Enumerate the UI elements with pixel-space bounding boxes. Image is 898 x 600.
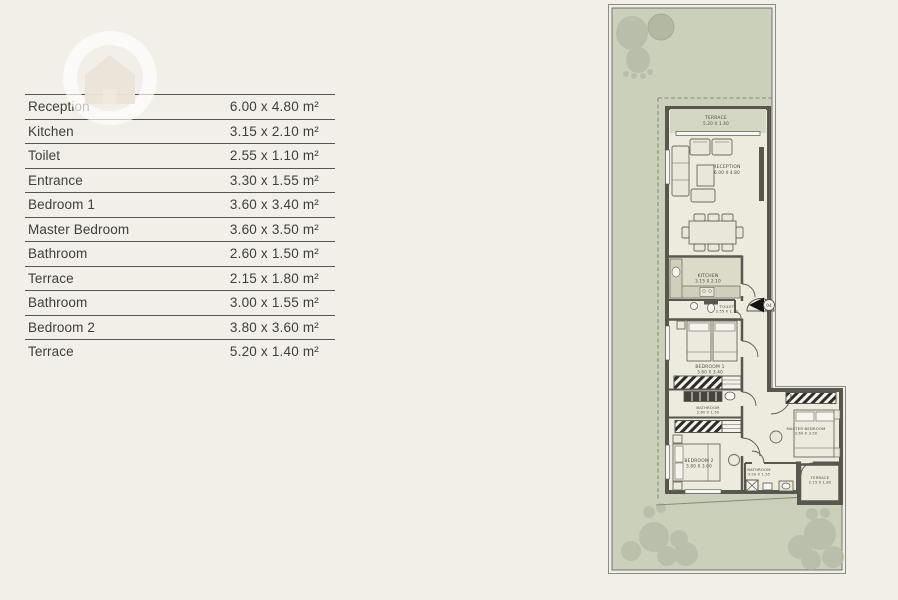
room-size: 2.60 x 1.50 m²: [230, 246, 335, 261]
room-size: 3.60 x 3.40 m²: [230, 197, 335, 212]
terrace-top: TERRACE 5.20 X 1.40: [670, 109, 766, 136]
bedroom1-label: BEDROOM 1 3.60 X 3.40: [695, 364, 724, 375]
table-row: Entrance3.30 x 1.55 m²: [25, 168, 335, 193]
svg-text:BATHROOM: BATHROOM: [747, 468, 770, 472]
table-row: Kitchen3.15 x 2.10 m²: [25, 119, 335, 144]
table-row: Toilet2.55 x 1.10 m²: [25, 143, 335, 168]
svg-text:3.00 X 1.55: 3.00 X 1.55: [748, 473, 770, 477]
table-row: Terrace2.15 x 1.80 m²: [25, 266, 335, 291]
room-label: Master Bedroom: [25, 222, 129, 237]
svg-text:6.00 X 4.80: 6.00 X 4.80: [714, 170, 740, 175]
svg-text:2.60 X 1.50: 2.60 X 1.50: [697, 411, 719, 415]
room-label: Reception: [25, 99, 90, 114]
room-size: 3.15 x 2.10 m²: [230, 124, 335, 139]
floorplan-page: Reception6.00 x 4.80 m² Kitchen3.15 x 2.…: [0, 0, 898, 600]
room-label: Bathroom: [25, 295, 87, 310]
bedroom2-label: BEDROOM 2 3.80 X 3.60: [684, 458, 713, 469]
reception-label: RECEPTION 6.00 X 4.80: [713, 164, 740, 175]
room-label: Bathroom: [25, 246, 87, 261]
svg-text:3.15 X 2.10: 3.15 X 2.10: [695, 279, 721, 284]
svg-text:3.60 X 3.50: 3.60 X 3.50: [795, 432, 817, 436]
room-size: 3.00 x 1.55 m²: [230, 295, 335, 310]
room-size: 6.00 x 4.80 m²: [230, 99, 335, 114]
table-row: Master Bedroom3.60 x 3.50 m²: [25, 217, 335, 242]
room-label: Toilet: [25, 148, 60, 163]
svg-text:MASTER BEDROOM: MASTER BEDROOM: [786, 427, 825, 431]
table-row: Terrace5.20 x 1.40 m²: [25, 339, 335, 364]
room-label: Kitchen: [25, 124, 74, 139]
room-size: 2.15 x 1.80 m²: [230, 271, 335, 286]
svg-text:2.55 X 1.10: 2.55 X 1.10: [716, 310, 738, 314]
svg-text:3.80 X 3.60: 3.80 X 3.60: [686, 464, 712, 469]
svg-text:BATHROOM: BATHROOM: [696, 406, 719, 410]
svg-text:TERRACE: TERRACE: [810, 476, 830, 480]
room-dimensions-table: Reception6.00 x 4.80 m² Kitchen3.15 x 2.…: [25, 94, 335, 364]
room-size: 2.55 x 1.10 m²: [230, 148, 335, 163]
terrace-bottom: TERRACE 2.15 X 1.80: [800, 465, 840, 502]
room-size: 3.30 x 1.55 m²: [230, 173, 335, 188]
table-row: Bedroom 13.60 x 3.40 m²: [25, 192, 335, 217]
room-label: Bedroom 2: [25, 320, 95, 335]
svg-text:5.20 X 1.40: 5.20 X 1.40: [703, 121, 729, 126]
svg-text:3.60 X 3.40: 3.60 X 3.40: [697, 370, 723, 375]
svg-text:2.15 X 1.80: 2.15 X 1.80: [809, 481, 831, 485]
room-label: Terrace: [25, 271, 74, 286]
svg-text:TOILET: TOILET: [719, 305, 735, 309]
room-size: 3.60 x 3.50 m²: [230, 222, 335, 237]
room-size: 5.20 x 1.40 m²: [230, 344, 335, 359]
table-row: Bathroom3.00 x 1.55 m²: [25, 290, 335, 315]
room-label: Terrace: [25, 344, 74, 359]
table-row: Reception6.00 x 4.80 m²: [25, 94, 335, 119]
table-row: Bathroom2.60 x 1.50 m²: [25, 241, 335, 266]
room-size: 3.80 x 3.60 m²: [230, 320, 335, 335]
table-row: Bedroom 23.80 x 3.60 m²: [25, 315, 335, 340]
room-label: Bedroom 1: [25, 197, 95, 212]
room-label: Entrance: [25, 173, 83, 188]
svg-text:04: 04: [766, 303, 772, 309]
